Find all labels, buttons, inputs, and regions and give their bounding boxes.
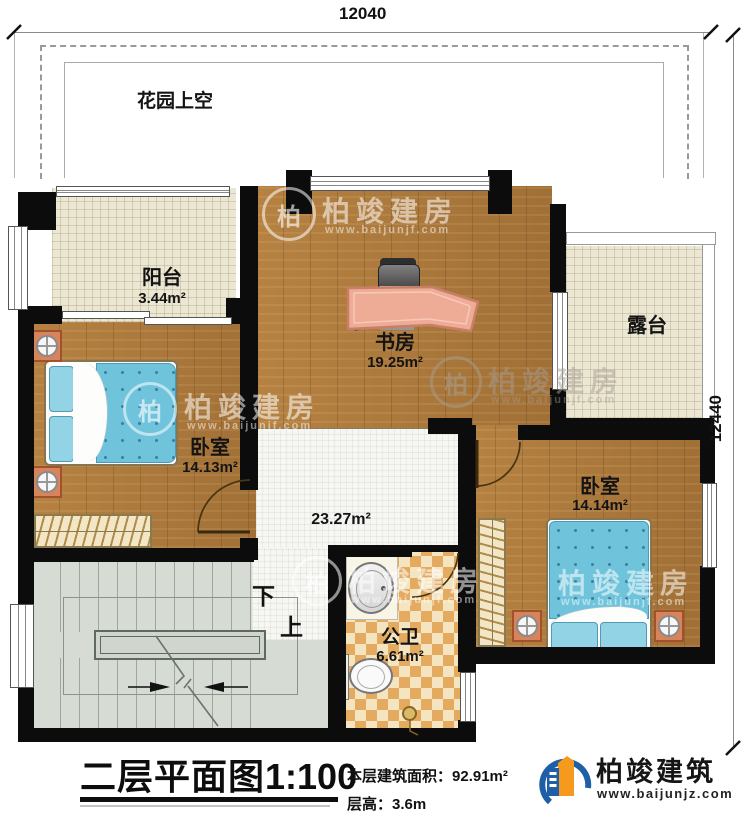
floor-area-value: 92.91m² <box>452 768 508 785</box>
watermark-site: www.baijunjf.com <box>491 394 616 406</box>
door-leaf-bathroom <box>412 545 458 552</box>
wall <box>18 728 460 742</box>
nightstand <box>654 610 684 642</box>
watermark-site: www.baijunjf.com <box>561 596 686 608</box>
window <box>10 604 34 688</box>
window <box>460 672 476 722</box>
balcony-railing <box>56 186 230 197</box>
balcony-label: 阳台 <box>112 268 212 289</box>
floor-height-label: 层高： <box>347 796 392 813</box>
wall <box>550 418 714 432</box>
floor-height-line: 层高：3.6m <box>347 793 426 814</box>
watermark-site: www.baijunjf.com <box>187 420 312 432</box>
dimension-right: 12440 <box>706 395 726 442</box>
terrace-label: 露台 <box>597 316 697 337</box>
bedroom-left-area: 14.13m² <box>160 459 260 476</box>
sliding-door-balcony <box>144 317 232 325</box>
terrace-railing-top <box>566 232 716 245</box>
desk-pad <box>380 286 414 330</box>
nightstand <box>512 610 542 642</box>
sheet-title-text: 二层平面图 <box>80 756 265 797</box>
wall <box>428 418 472 434</box>
dimension-top: 12040 <box>339 4 386 24</box>
watermark-site: www.baijunjf.com <box>325 224 450 236</box>
watermark-logo: 柏 <box>123 382 177 436</box>
wall <box>18 192 56 230</box>
window <box>310 176 490 191</box>
wall <box>458 720 476 742</box>
pillow <box>49 366 74 412</box>
sheet-scale: 1:100 <box>265 756 357 797</box>
wall <box>18 548 254 562</box>
bathroom-label: 公卫 <box>370 628 430 648</box>
plant-icon: ✳ <box>450 294 478 322</box>
bedroom-left-label: 卧室 <box>160 438 260 459</box>
lamp-icon <box>36 335 58 357</box>
floor-height-value: 3.6m <box>392 796 426 813</box>
floor-plan: 花园上空 12040 12440 下 上 ✳ <box>0 0 750 817</box>
floor-area-line: 本层建筑面积：92.91m² <box>347 765 508 786</box>
wall <box>488 170 512 214</box>
brand-logo-icon <box>538 750 592 808</box>
brand-name: 柏竣建筑 <box>596 750 716 789</box>
hall-area: 23.27m² <box>296 511 386 529</box>
bedroom-right-label: 卧室 <box>550 477 650 498</box>
garden-inner-line <box>64 62 664 178</box>
title-underline <box>80 797 338 802</box>
sheet-title: 二层平面图1:100 <box>80 748 357 800</box>
watermark-logo: 柏 <box>262 187 316 241</box>
floor-drain-icon <box>402 706 417 721</box>
study-area: 19.25m² <box>345 354 445 371</box>
wall <box>346 545 412 557</box>
dimension-top-line <box>14 32 711 33</box>
laptop-screen <box>353 304 372 319</box>
nightstand <box>32 330 62 362</box>
garden-label: 花园上空 <box>137 92 213 112</box>
balcony-area: 3.44m² <box>112 290 212 307</box>
floor-area-label: 本层建筑面积： <box>347 768 452 785</box>
stairs-down-label: 下 <box>252 577 275 611</box>
window <box>8 226 28 310</box>
watermark-site: www.baijunjf.com <box>351 594 476 606</box>
watermark-logo: 柏 <box>292 556 342 606</box>
window <box>702 483 717 568</box>
brand-site: www.baijunjz.com <box>597 786 733 801</box>
bathroom-area: 6.61m² <box>368 648 432 665</box>
title-underline-thin <box>80 805 330 807</box>
hall-floor <box>256 428 460 549</box>
pillow <box>49 416 74 462</box>
wall <box>550 204 566 292</box>
bedroom-right-area: 14.14m² <box>550 497 650 514</box>
toilet-bowl <box>357 665 385 689</box>
wall <box>458 425 476 672</box>
sliding-door-balcony <box>62 311 150 319</box>
study-label: 书房 <box>345 333 445 354</box>
nightstand <box>32 466 62 498</box>
lamp-icon <box>658 615 680 637</box>
dimension-right-line <box>733 34 734 748</box>
wall <box>458 647 715 664</box>
stairs-handrail <box>94 630 266 660</box>
lamp-icon <box>516 615 538 637</box>
stairs-up-label: 上 <box>280 608 303 642</box>
wardrobe-left <box>34 514 152 548</box>
lamp-icon <box>36 471 58 493</box>
